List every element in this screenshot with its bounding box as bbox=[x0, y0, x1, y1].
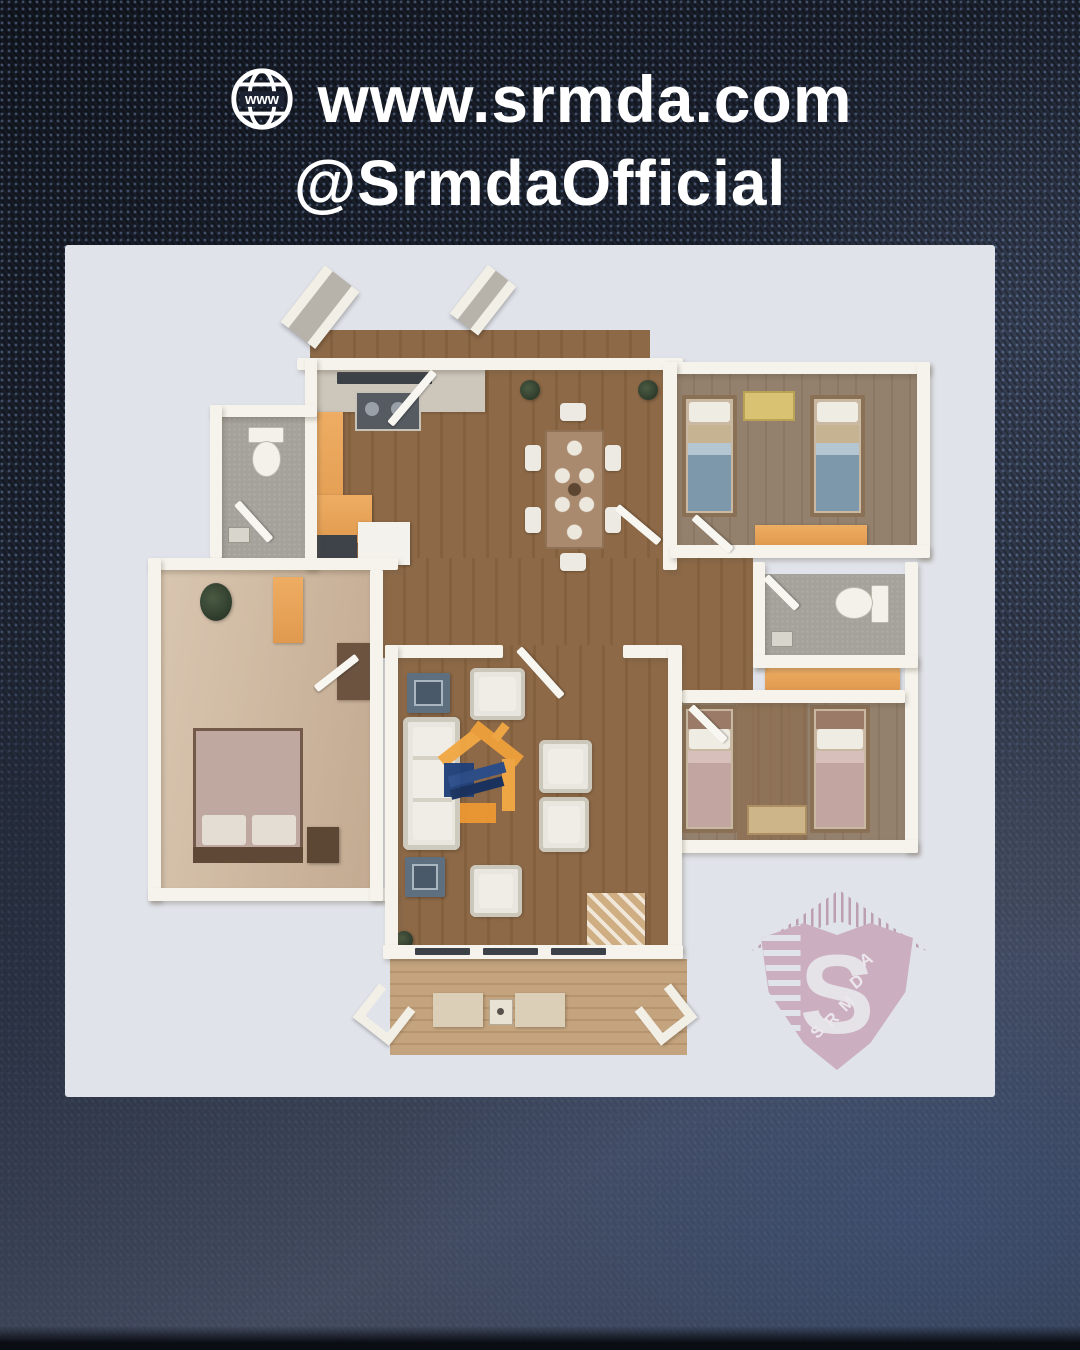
bathroom2-sink bbox=[771, 631, 793, 647]
living-window bbox=[415, 948, 470, 955]
plant bbox=[520, 380, 540, 400]
toilet-tank bbox=[871, 585, 889, 623]
toilet-bowl bbox=[252, 441, 281, 477]
wall bbox=[665, 362, 930, 374]
wall bbox=[663, 362, 677, 570]
post-header: www www.srmda.com @SrmdaOfficial bbox=[0, 58, 1080, 220]
living-window bbox=[551, 948, 606, 955]
armchair bbox=[539, 740, 592, 793]
living-window bbox=[483, 948, 538, 955]
website-url: www.srmda.com bbox=[317, 61, 852, 137]
side-table bbox=[405, 857, 445, 897]
social-handle: @SrmdaOfficial bbox=[0, 146, 1080, 220]
globe-www-label: www bbox=[244, 92, 280, 108]
entry-stair-rail bbox=[450, 264, 517, 335]
toilet-bowl bbox=[835, 587, 873, 619]
armchair bbox=[470, 668, 525, 720]
dining-chair bbox=[605, 445, 621, 471]
plant bbox=[638, 380, 658, 400]
porch-table bbox=[489, 999, 513, 1025]
dining-table bbox=[545, 430, 604, 549]
plant bbox=[200, 583, 232, 621]
twin-bed bbox=[810, 395, 865, 517]
porch-bench bbox=[433, 993, 483, 1027]
wall bbox=[148, 558, 398, 570]
house-logo-watermark bbox=[440, 723, 523, 827]
wall bbox=[210, 405, 222, 558]
dining-chair bbox=[560, 553, 586, 571]
wall bbox=[297, 358, 683, 370]
wall bbox=[917, 362, 930, 558]
bathroom1-sink bbox=[228, 527, 250, 543]
base-block bbox=[460, 803, 496, 823]
pillow bbox=[817, 729, 863, 749]
wall bbox=[905, 562, 918, 853]
floor-plan: S S R M D A bbox=[65, 245, 995, 1097]
nightstand bbox=[747, 805, 807, 835]
master-pillow bbox=[252, 815, 296, 845]
wall bbox=[370, 570, 383, 901]
wall bbox=[305, 358, 317, 570]
kitchen-window bbox=[337, 372, 432, 384]
bedroom-bench bbox=[307, 827, 339, 863]
twin-bed bbox=[682, 395, 737, 517]
shield-letter: S bbox=[761, 924, 913, 1064]
wall bbox=[210, 405, 317, 417]
wall bbox=[148, 558, 161, 901]
pillow bbox=[689, 402, 730, 422]
wall bbox=[385, 645, 398, 952]
chimney bbox=[491, 722, 509, 742]
wall bbox=[682, 690, 905, 703]
twin-bed bbox=[810, 705, 870, 833]
dining-chair bbox=[525, 507, 541, 533]
armchair bbox=[470, 865, 522, 917]
wall bbox=[668, 840, 918, 853]
entry-vestibule-floor bbox=[310, 330, 650, 360]
burner-icon bbox=[365, 402, 379, 416]
master-wardrobe bbox=[273, 577, 303, 643]
side-table bbox=[407, 673, 450, 713]
master-headboard bbox=[193, 847, 303, 863]
hall-floor bbox=[383, 558, 677, 658]
wall bbox=[668, 645, 682, 952]
nightstand bbox=[743, 391, 795, 421]
srmda-shield-watermark: S S R M D A bbox=[737, 890, 947, 1072]
wall bbox=[385, 645, 503, 658]
bedroom2-wardrobe bbox=[765, 668, 900, 690]
right-corridor-floor bbox=[677, 545, 753, 703]
bedroom1-wardrobe bbox=[755, 525, 867, 545]
dining-chair bbox=[525, 445, 541, 471]
wall bbox=[148, 888, 395, 901]
bottom-shadow-band bbox=[0, 1326, 1080, 1350]
porch-bench bbox=[515, 993, 565, 1027]
wall bbox=[753, 655, 918, 668]
floorplan-card: S S R M D A bbox=[65, 245, 995, 1097]
wall bbox=[670, 545, 930, 558]
pillow bbox=[817, 402, 858, 422]
master-pillow bbox=[202, 815, 246, 845]
globe-www-icon: www bbox=[227, 64, 297, 134]
dining-chair bbox=[560, 403, 586, 421]
website-line: www www.srmda.com bbox=[0, 58, 1080, 140]
armchair bbox=[539, 797, 589, 852]
chevron-rug bbox=[587, 893, 645, 951]
master-bed bbox=[193, 728, 303, 863]
